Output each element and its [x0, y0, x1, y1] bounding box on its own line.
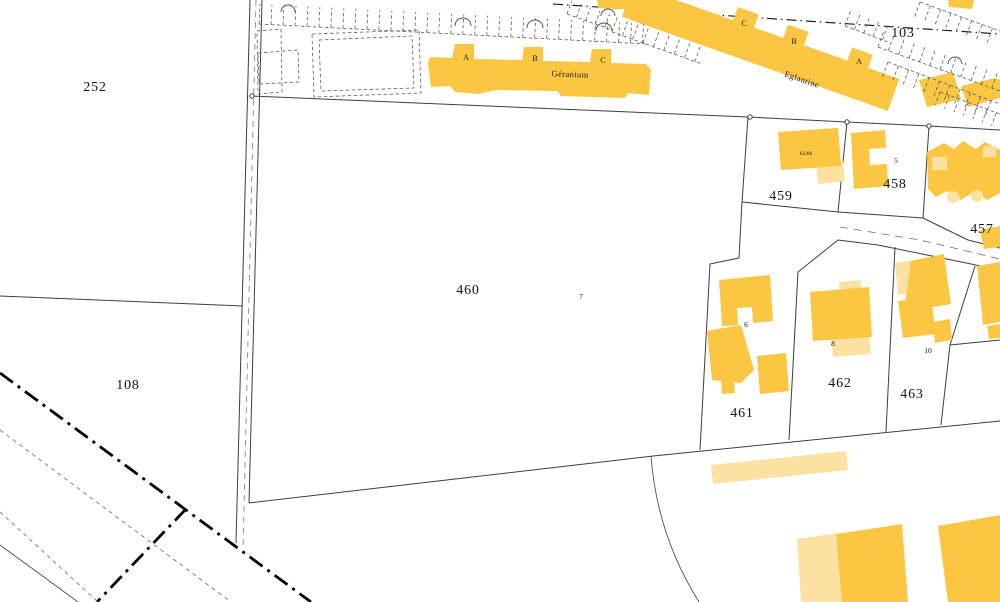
building-annex [932, 157, 947, 170]
building-annex [971, 190, 983, 202]
building [948, 0, 974, 9]
building [898, 297, 936, 338]
building-annex [711, 451, 848, 484]
building-eglantine [622, 0, 904, 111]
parcel-label-463: 463 [900, 387, 923, 402]
section-label: A [463, 53, 469, 62]
section-label: B [791, 37, 796, 46]
section-label: B [532, 54, 537, 63]
parcel-label-462: 462 [828, 376, 851, 391]
section-label: C [600, 56, 605, 65]
house-number: 5 [894, 156, 898, 165]
cadastral-map: 252 108 460 461 462 463 459 458 457 103 … [0, 0, 1000, 602]
residence-name-geranium: Géranium [551, 68, 589, 79]
house-number: 10 [924, 346, 932, 355]
parcel-label-103: 103 [891, 26, 914, 41]
parcel-label-460: 460 [456, 283, 479, 298]
building [719, 275, 773, 326]
building-annex [947, 191, 959, 203]
building [810, 287, 872, 341]
parcel-label-252: 252 [83, 80, 106, 95]
house-number: 7 [579, 292, 583, 301]
building-annex [983, 146, 996, 157]
building [707, 325, 754, 383]
boundary-nodes [250, 94, 931, 128]
building [938, 515, 1000, 602]
building [933, 319, 952, 343]
section-label: A [856, 57, 862, 66]
building [778, 128, 841, 170]
section-label: C [741, 19, 746, 28]
building-geranium [428, 44, 651, 98]
house-number: 62/66 [800, 151, 813, 157]
map-canvas: 252 108 460 461 462 463 459 458 457 103 … [0, 0, 1000, 602]
building [987, 324, 1000, 339]
parcel-label-457: 457 [970, 222, 993, 237]
building [836, 524, 908, 602]
parcel-label-108: 108 [116, 378, 139, 393]
parcel-label-458: 458 [883, 177, 906, 192]
building-annex [797, 533, 843, 602]
parcel-label-459: 459 [769, 189, 792, 204]
building [721, 379, 735, 394]
house-number: 6 [744, 320, 748, 329]
parcel-label-461: 461 [730, 406, 753, 421]
building [757, 353, 789, 394]
buildings [428, 0, 1000, 602]
building [919, 72, 961, 107]
building [977, 262, 1000, 325]
house-number: 8 [831, 339, 835, 348]
